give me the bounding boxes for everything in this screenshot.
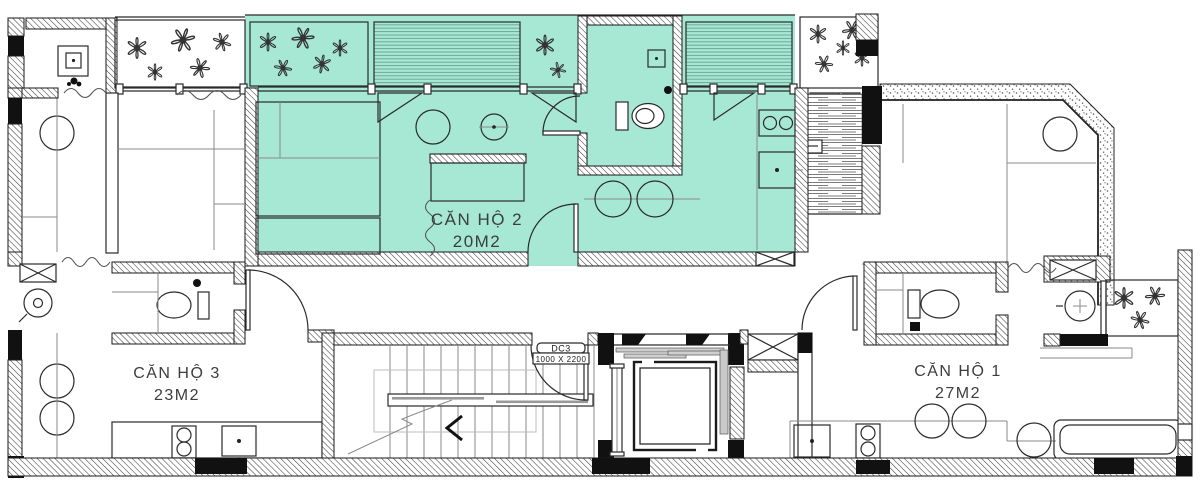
- door-tag-size: 1000 X 2200: [536, 355, 587, 364]
- wood-deck: [806, 86, 882, 214]
- door-tag: DC3 1000 X 2200: [533, 343, 589, 364]
- door-tag-code: DC3: [551, 344, 571, 354]
- unit-2-hotspot[interactable]: [245, 15, 795, 266]
- bottom-outer-wall: [8, 456, 1192, 476]
- washing-machine-icon: [58, 46, 88, 76]
- unit-1-hotspot[interactable]: [860, 262, 1190, 458]
- floor-plan-page: CĂN HỘ 2 20M2 CĂN HỘ 3 23M2 CĂN HỘ 1 27M…: [0, 0, 1200, 490]
- unit-3-hotspot[interactable]: [22, 262, 322, 458]
- floor-plan: CĂN HỘ 2 20M2 CĂN HỘ 3 23M2 CĂN HỘ 1 27M…: [0, 0, 1200, 490]
- stair-rail: [388, 394, 593, 406]
